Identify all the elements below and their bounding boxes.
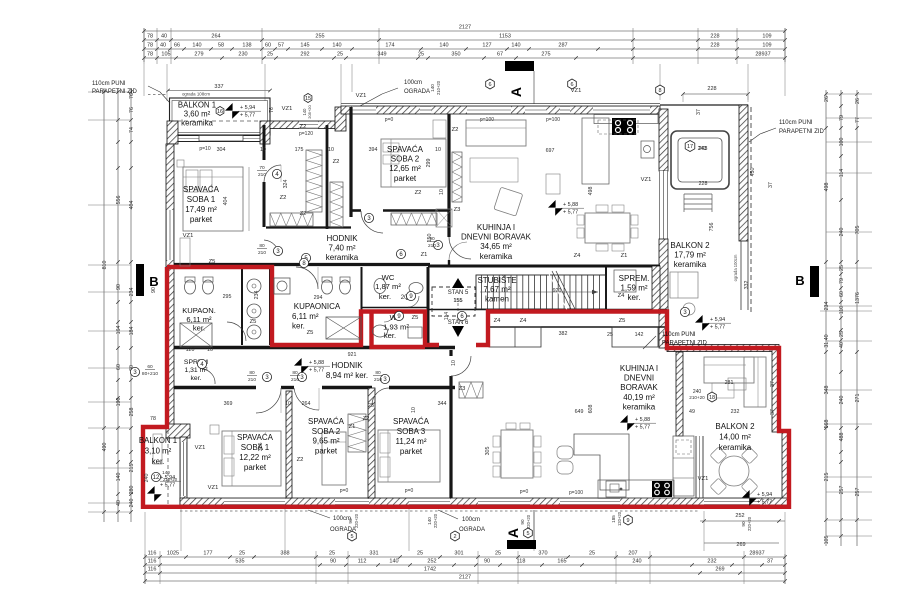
svg-text:25: 25	[368, 403, 374, 409]
svg-text:kamen: kamen	[485, 294, 509, 303]
svg-text:331: 331	[369, 551, 378, 557]
svg-text:+ 5,77: + 5,77	[635, 425, 650, 431]
svg-text:164: 164	[116, 326, 122, 335]
svg-text:ograda 100cm: ograda 100cm	[733, 254, 738, 281]
svg-text:145: 145	[300, 43, 309, 49]
svg-text:B: B	[795, 273, 804, 288]
svg-text:498: 498	[588, 187, 594, 196]
svg-text:SPAVAĆA: SPAVAĆA	[393, 417, 430, 426]
svg-text:78: 78	[147, 52, 153, 58]
svg-text:Z2: Z2	[300, 211, 307, 217]
svg-text:10: 10	[285, 401, 291, 407]
svg-text:VZ1: VZ1	[208, 485, 219, 491]
svg-text:205+20: 205+20	[307, 105, 312, 119]
svg-text:1025: 1025	[167, 551, 179, 557]
svg-text:SOBA 2: SOBA 2	[312, 427, 341, 436]
svg-text:301: 301	[454, 551, 463, 557]
svg-text:271: 271	[855, 394, 861, 403]
svg-text:1742: 1742	[424, 567, 436, 573]
svg-text:Z2: Z2	[297, 457, 304, 463]
svg-text:HODNIK: HODNIK	[326, 234, 358, 243]
svg-text:705: 705	[855, 226, 861, 235]
svg-text:Z5: Z5	[619, 318, 626, 324]
svg-text:220+20: 220+20	[526, 514, 531, 529]
svg-text:1,87 m²: 1,87 m²	[375, 282, 401, 291]
svg-text:PARAPETNI ZID: PARAPETNI ZID	[779, 129, 825, 135]
svg-text:404: 404	[223, 197, 229, 206]
svg-text:60: 60	[265, 43, 271, 49]
svg-text:140: 140	[332, 43, 341, 49]
svg-text:Z5: Z5	[250, 319, 257, 325]
svg-text:67: 67	[497, 52, 503, 58]
svg-text:BORAVAK: BORAVAK	[620, 383, 658, 392]
svg-text:ker.: ker.	[152, 457, 165, 466]
svg-text:142: 142	[635, 332, 644, 338]
svg-text:100cm: 100cm	[404, 80, 422, 86]
svg-text:SPREM.: SPREM.	[619, 274, 650, 283]
svg-text:p=100: p=100	[546, 117, 560, 123]
svg-text:110cm PUNI: 110cm PUNI	[779, 120, 813, 126]
svg-text:220+20: 220+20	[747, 516, 752, 531]
svg-text:Z5: Z5	[412, 315, 419, 321]
svg-text:90: 90	[484, 559, 490, 565]
svg-text:295: 295	[223, 294, 232, 300]
svg-text:Z3: Z3	[459, 386, 466, 392]
svg-text:VZ1: VZ1	[698, 476, 709, 482]
svg-text:SOBA 1: SOBA 1	[241, 443, 270, 452]
svg-text:p=0: p=0	[520, 489, 529, 495]
svg-text:40: 40	[160, 43, 166, 49]
svg-text:KUPAON.: KUPAON.	[182, 306, 216, 315]
svg-text:WC: WC	[382, 273, 395, 282]
svg-text:490: 490	[102, 443, 108, 452]
svg-text:210+20: 210+20	[163, 477, 178, 482]
svg-text:112: 112	[358, 559, 367, 565]
svg-text:12,65 m²: 12,65 m²	[389, 164, 421, 173]
svg-text:40: 40	[839, 342, 845, 348]
svg-text:140: 140	[439, 43, 448, 49]
svg-text:921: 921	[348, 352, 357, 358]
svg-text:SOBA 2: SOBA 2	[391, 155, 420, 164]
svg-text:25: 25	[267, 52, 273, 58]
svg-text:+ 5,77: + 5,77	[309, 368, 324, 374]
svg-text:14,00 m²: 14,00 m²	[719, 432, 751, 441]
svg-text:450: 450	[750, 168, 756, 177]
svg-text:76: 76	[129, 107, 135, 113]
svg-text:7,67 m²: 7,67 m²	[483, 285, 510, 294]
svg-text:STAN 6: STAN 6	[448, 320, 469, 326]
svg-text:394: 394	[369, 147, 378, 153]
svg-text:287: 287	[558, 43, 567, 49]
svg-text:KUHINJA I: KUHINJA I	[477, 223, 515, 232]
svg-text:90: 90	[116, 284, 122, 290]
svg-text:Z5: Z5	[209, 259, 216, 265]
svg-text:A: A	[505, 528, 521, 538]
svg-text:ker.: ker.	[292, 322, 305, 331]
svg-text:228: 228	[707, 86, 716, 92]
svg-text:1,59 m²: 1,59 m²	[620, 284, 647, 293]
svg-text:350: 350	[451, 52, 460, 58]
svg-text:243: 243	[698, 146, 707, 152]
svg-text:28937: 28937	[749, 551, 764, 557]
svg-text:230: 230	[238, 52, 247, 58]
svg-text:5: 5	[526, 531, 529, 537]
svg-text:10: 10	[411, 407, 417, 413]
svg-text:6: 6	[570, 82, 573, 88]
svg-text:VZ1: VZ1	[641, 177, 652, 183]
svg-text:37: 37	[770, 381, 776, 387]
svg-text:p=100: p=100	[569, 490, 583, 496]
svg-text:STUBIŠTE: STUBIŠTE	[477, 276, 516, 285]
svg-text:3,10 m²: 3,10 m²	[145, 446, 172, 455]
svg-text:DNEVNI BORAVAK: DNEVNI BORAVAK	[461, 233, 532, 242]
svg-text:parket: parket	[394, 174, 417, 183]
svg-text:Z4: Z4	[520, 318, 528, 324]
svg-text:18: 18	[709, 395, 715, 401]
svg-text:49: 49	[689, 409, 695, 415]
svg-text:17: 17	[687, 144, 693, 150]
svg-text:parket: parket	[190, 215, 213, 224]
svg-text:264: 264	[211, 34, 220, 40]
svg-text:114: 114	[444, 312, 450, 320]
svg-text:+ 5,94: + 5,94	[757, 492, 772, 498]
svg-text:37: 37	[770, 409, 776, 415]
svg-text:ograda 108cm: ograda 108cm	[182, 92, 210, 97]
svg-text:120+20: 120+20	[617, 511, 622, 526]
svg-text:90: 90	[330, 559, 336, 565]
svg-text:279: 279	[194, 52, 203, 58]
svg-text:324: 324	[283, 180, 289, 189]
svg-text:234: 234	[254, 291, 260, 300]
svg-text:DNEVNI: DNEVNI	[624, 374, 654, 383]
svg-text:140: 140	[427, 517, 432, 525]
svg-text:116: 116	[148, 567, 157, 573]
svg-text:275: 275	[541, 52, 550, 58]
svg-text:177: 177	[203, 551, 212, 557]
svg-text:109: 109	[762, 34, 771, 40]
svg-text:10: 10	[260, 147, 266, 153]
svg-text:26: 26	[855, 98, 861, 104]
svg-text:Z2: Z2	[280, 195, 287, 201]
svg-text:232: 232	[707, 559, 716, 565]
svg-text:369: 369	[224, 401, 233, 407]
svg-text:76: 76	[269, 107, 275, 113]
svg-text:keramika: keramika	[480, 252, 513, 261]
svg-text:228: 228	[710, 34, 719, 40]
svg-text:140: 140	[192, 43, 201, 49]
svg-text:90: 90	[429, 236, 435, 242]
svg-text:60: 60	[839, 291, 845, 297]
svg-text:Z1: Z1	[349, 424, 356, 430]
svg-text:11,24 m²: 11,24 m²	[396, 437, 427, 446]
svg-text:VZ1: VZ1	[356, 93, 367, 99]
svg-text:60: 60	[116, 364, 122, 370]
svg-text:B: B	[149, 274, 158, 289]
svg-text:10: 10	[439, 189, 445, 195]
svg-text:ker.: ker.	[384, 331, 396, 340]
svg-text:parket: parket	[315, 446, 338, 455]
svg-text:210: 210	[428, 243, 436, 249]
svg-text:304: 304	[217, 147, 226, 153]
svg-text:210: 210	[248, 377, 256, 383]
svg-text:109: 109	[762, 43, 771, 49]
svg-text:281: 281	[725, 380, 734, 386]
svg-text:+ 5,94: + 5,94	[240, 105, 255, 111]
svg-text:116: 116	[148, 559, 157, 565]
svg-text:78: 78	[147, 43, 153, 49]
svg-text:921: 921	[553, 288, 562, 294]
svg-text:SPAVAĆA: SPAVAĆA	[308, 417, 345, 426]
svg-text:HODNIK: HODNIK	[331, 361, 363, 370]
svg-text:p=10: p=10	[199, 146, 210, 152]
svg-text:A: A	[508, 87, 524, 97]
svg-text:116: 116	[148, 551, 157, 557]
svg-text:Z2: Z2	[300, 124, 307, 130]
svg-text:5: 5	[350, 534, 353, 540]
svg-text:488: 488	[839, 433, 845, 442]
svg-text:74: 74	[129, 127, 135, 133]
svg-text:252: 252	[735, 513, 744, 519]
svg-text:PARAPETNI ZID: PARAPETNI ZID	[92, 89, 138, 95]
svg-text:756: 756	[709, 223, 715, 232]
svg-text:25: 25	[589, 551, 595, 557]
svg-text:12,22 m²: 12,22 m²	[239, 453, 271, 462]
svg-text:keramika: keramika	[674, 260, 707, 269]
svg-text:344: 344	[438, 401, 447, 407]
svg-text:6,11 m²: 6,11 m²	[292, 312, 319, 321]
svg-text:1153: 1153	[499, 34, 511, 40]
svg-text:37: 37	[696, 109, 702, 115]
svg-text:p=0: p=0	[340, 488, 349, 494]
svg-text:80: 80	[259, 243, 265, 249]
svg-text:+ 5,88: + 5,88	[563, 202, 578, 208]
svg-text:17,79 m²: 17,79 m²	[674, 250, 706, 259]
svg-text:105: 105	[824, 536, 830, 545]
svg-text:17,49 m²: 17,49 m²	[185, 205, 217, 214]
svg-text:KUHINJA I: KUHINJA I	[620, 364, 658, 373]
svg-text:80+210: 80+210	[142, 371, 158, 377]
svg-text:110cm PUNI: 110cm PUNI	[92, 81, 126, 87]
svg-text:257: 257	[839, 486, 845, 495]
svg-text:Z4: Z4	[618, 293, 626, 299]
svg-text:140: 140	[511, 43, 520, 49]
svg-text:OGRADA: OGRADA	[404, 89, 430, 95]
svg-text:232: 232	[731, 409, 740, 415]
svg-text:12: 12	[153, 475, 160, 481]
svg-text:332: 332	[744, 281, 750, 290]
svg-text:VZ1: VZ1	[282, 106, 293, 112]
svg-text:KUPAONICA: KUPAONICA	[294, 302, 341, 311]
svg-text:Z2: Z2	[452, 127, 459, 133]
svg-text:BALKON 2: BALKON 2	[670, 241, 710, 250]
svg-text:40,19 m²: 40,19 m²	[623, 393, 655, 402]
svg-text:BALKON 1: BALKON 1	[178, 101, 216, 110]
svg-text:294: 294	[314, 295, 323, 301]
svg-text:SPAVAĆA: SPAVAĆA	[183, 185, 220, 194]
svg-text:388: 388	[280, 551, 289, 557]
svg-text:34,65 m²: 34,65 m²	[480, 242, 512, 251]
svg-text:264: 264	[302, 401, 311, 407]
svg-text:138: 138	[242, 43, 251, 49]
svg-text:207: 207	[628, 551, 637, 557]
svg-text:2127: 2127	[459, 25, 471, 31]
svg-text:15: 15	[305, 96, 311, 102]
svg-text:BALKON 2: BALKON 2	[715, 422, 755, 431]
svg-text:90: 90	[741, 521, 746, 527]
svg-text:keramika: keramika	[623, 402, 656, 411]
svg-text:Z5: Z5	[307, 330, 314, 336]
svg-text:258: 258	[129, 408, 135, 417]
svg-text:220+20: 220+20	[354, 513, 359, 528]
svg-text:STAN 5: STAN 5	[448, 290, 469, 296]
svg-text:9: 9	[626, 518, 629, 524]
svg-text:175: 175	[295, 147, 304, 153]
svg-text:292: 292	[300, 52, 309, 58]
svg-text:SPAVAĆA: SPAVAĆA	[387, 145, 424, 154]
svg-text:210: 210	[291, 377, 299, 383]
svg-text:608: 608	[588, 405, 594, 414]
svg-text:keramika: keramika	[181, 119, 213, 128]
svg-text:697: 697	[546, 148, 555, 154]
svg-text:Z4: Z4	[494, 318, 502, 324]
svg-text:Z1: Z1	[421, 252, 428, 258]
svg-text:PARAPETNI ZID: PARAPETNI ZID	[662, 341, 708, 347]
svg-text:110cm PUNI: 110cm PUNI	[662, 332, 696, 338]
svg-text:228: 228	[710, 43, 719, 49]
svg-text:BALKON 1: BALKON 1	[139, 436, 177, 445]
svg-text:SPAVAĆA: SPAVAĆA	[237, 433, 274, 442]
svg-text:Z2: Z2	[333, 159, 340, 165]
svg-text:165: 165	[557, 559, 566, 565]
svg-text:Z1: Z1	[621, 253, 628, 259]
svg-text:382: 382	[559, 331, 568, 337]
svg-text:10: 10	[207, 347, 213, 353]
svg-text:ker.: ker.	[628, 293, 641, 302]
svg-text:28937: 28937	[755, 52, 770, 58]
svg-text:10: 10	[451, 360, 457, 366]
svg-text:649: 649	[575, 409, 584, 415]
svg-text:240: 240	[144, 474, 150, 483]
svg-text:1376: 1376	[855, 292, 861, 304]
svg-text:79: 79	[839, 278, 845, 284]
svg-text:Z2: Z2	[415, 190, 422, 196]
svg-text:p=0: p=0	[405, 488, 414, 494]
svg-text:210: 210	[374, 377, 382, 383]
svg-text:228: 228	[699, 181, 708, 187]
svg-text:6,11 m²: 6,11 m²	[186, 315, 212, 324]
svg-text:Z2: Z2	[363, 416, 370, 422]
svg-text:2: 2	[453, 534, 456, 540]
svg-text:70: 70	[259, 165, 265, 171]
svg-text:305: 305	[485, 447, 491, 456]
svg-text:parket: parket	[244, 463, 267, 472]
svg-text:240: 240	[632, 559, 641, 565]
svg-text:25: 25	[839, 331, 845, 337]
svg-text:220+20: 220+20	[433, 513, 438, 528]
svg-text:3,60 m²: 3,60 m²	[184, 110, 211, 119]
svg-text:+ 5,88: + 5,88	[309, 360, 324, 366]
svg-text:80: 80	[249, 370, 255, 376]
svg-text:+ 5,77: + 5,77	[563, 210, 578, 216]
svg-text:p=0: p=0	[385, 117, 394, 123]
svg-text:498: 498	[824, 183, 830, 192]
svg-text:25: 25	[337, 52, 343, 58]
svg-text:+ 5,77: + 5,77	[160, 483, 175, 489]
svg-text:Z3: Z3	[454, 207, 461, 213]
svg-text:9,65 m²: 9,65 m²	[312, 437, 339, 446]
svg-text:ker.: ker.	[191, 375, 202, 382]
svg-text:269: 269	[715, 567, 724, 573]
svg-text:SOBA 3: SOBA 3	[397, 427, 426, 436]
svg-text:155: 155	[454, 298, 463, 304]
svg-text:90: 90	[520, 519, 525, 525]
svg-text:8: 8	[658, 88, 661, 94]
svg-text:25: 25	[417, 551, 423, 557]
svg-text:10: 10	[328, 147, 334, 153]
svg-text:140: 140	[389, 559, 398, 565]
svg-text:127: 127	[482, 43, 491, 49]
svg-text:OGRADA: OGRADA	[459, 527, 485, 533]
svg-text:2127: 2127	[459, 575, 471, 581]
svg-text:7,40 m²: 7,40 m²	[328, 243, 355, 252]
svg-text:185: 185	[611, 515, 616, 523]
svg-text:556: 556	[116, 196, 122, 205]
svg-text:keramika: keramika	[719, 443, 752, 452]
svg-text:25: 25	[495, 551, 501, 557]
svg-text:252: 252	[427, 559, 436, 565]
svg-text:parket: parket	[400, 447, 423, 456]
svg-text:66: 66	[174, 43, 180, 49]
svg-text:78: 78	[150, 416, 156, 422]
svg-text:78: 78	[147, 34, 153, 40]
svg-text:60: 60	[147, 364, 153, 370]
svg-text:210+20: 210+20	[689, 395, 705, 400]
svg-text:100cm: 100cm	[462, 517, 480, 523]
svg-text:90: 90	[151, 287, 157, 293]
svg-text:140: 140	[116, 473, 122, 482]
svg-text:25: 25	[239, 551, 245, 557]
svg-text:VZ1: VZ1	[183, 233, 194, 239]
svg-text:+ 5,94: + 5,94	[710, 317, 725, 323]
svg-text:174: 174	[385, 43, 394, 49]
svg-text:37: 37	[767, 559, 773, 565]
svg-text:140: 140	[430, 84, 435, 92]
svg-text:80: 80	[292, 370, 298, 376]
svg-text:58: 58	[218, 43, 224, 49]
svg-text:255: 255	[315, 34, 324, 40]
svg-text:10: 10	[435, 147, 441, 153]
svg-text:25: 25	[329, 551, 335, 557]
svg-text:370: 370	[538, 551, 547, 557]
svg-text:140: 140	[162, 470, 170, 475]
svg-text:SOBA 1: SOBA 1	[187, 195, 216, 204]
svg-text:+ 5,77: + 5,77	[710, 325, 725, 331]
svg-text:p=120: p=120	[299, 131, 313, 137]
svg-text:57: 57	[278, 43, 284, 49]
svg-text:240: 240	[839, 396, 845, 405]
svg-text:26: 26	[824, 96, 830, 102]
svg-text:6: 6	[488, 82, 491, 88]
svg-text:120: 120	[186, 347, 195, 353]
svg-text:25: 25	[607, 332, 613, 338]
svg-text:8,94 m² ker.: 8,94 m² ker.	[326, 371, 368, 380]
svg-text:40: 40	[161, 34, 167, 40]
svg-text:ker.: ker.	[379, 292, 391, 301]
svg-text:535: 535	[235, 559, 244, 565]
svg-text:16: 16	[217, 109, 223, 115]
svg-text:+ 5,77: + 5,77	[757, 500, 772, 506]
svg-text:210: 210	[258, 250, 266, 256]
